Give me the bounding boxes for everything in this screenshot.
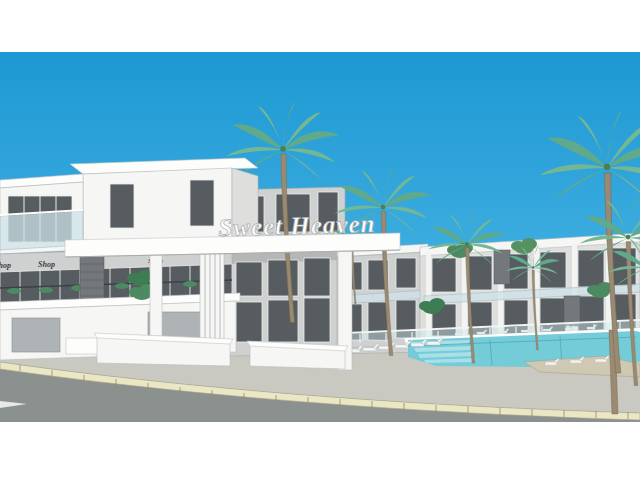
letterbox-bottom (0, 422, 640, 480)
entrance-pillar-striped (200, 247, 224, 347)
entrance-pillar-1 (150, 252, 162, 336)
shop-sign-3: Shop (0, 261, 11, 270)
rendering-frame: Shop Shop Shop (0, 0, 640, 480)
project-sign: Sweet Heaven (218, 210, 376, 241)
scene-svg: Shop Shop Shop (0, 52, 640, 422)
render-scene: Shop Shop Shop (0, 52, 640, 422)
stone-accent-2 (564, 296, 580, 326)
letterbox-top (0, 0, 640, 52)
stone-accent-1 (494, 250, 510, 284)
shop-sign-1: Shop (38, 260, 55, 269)
